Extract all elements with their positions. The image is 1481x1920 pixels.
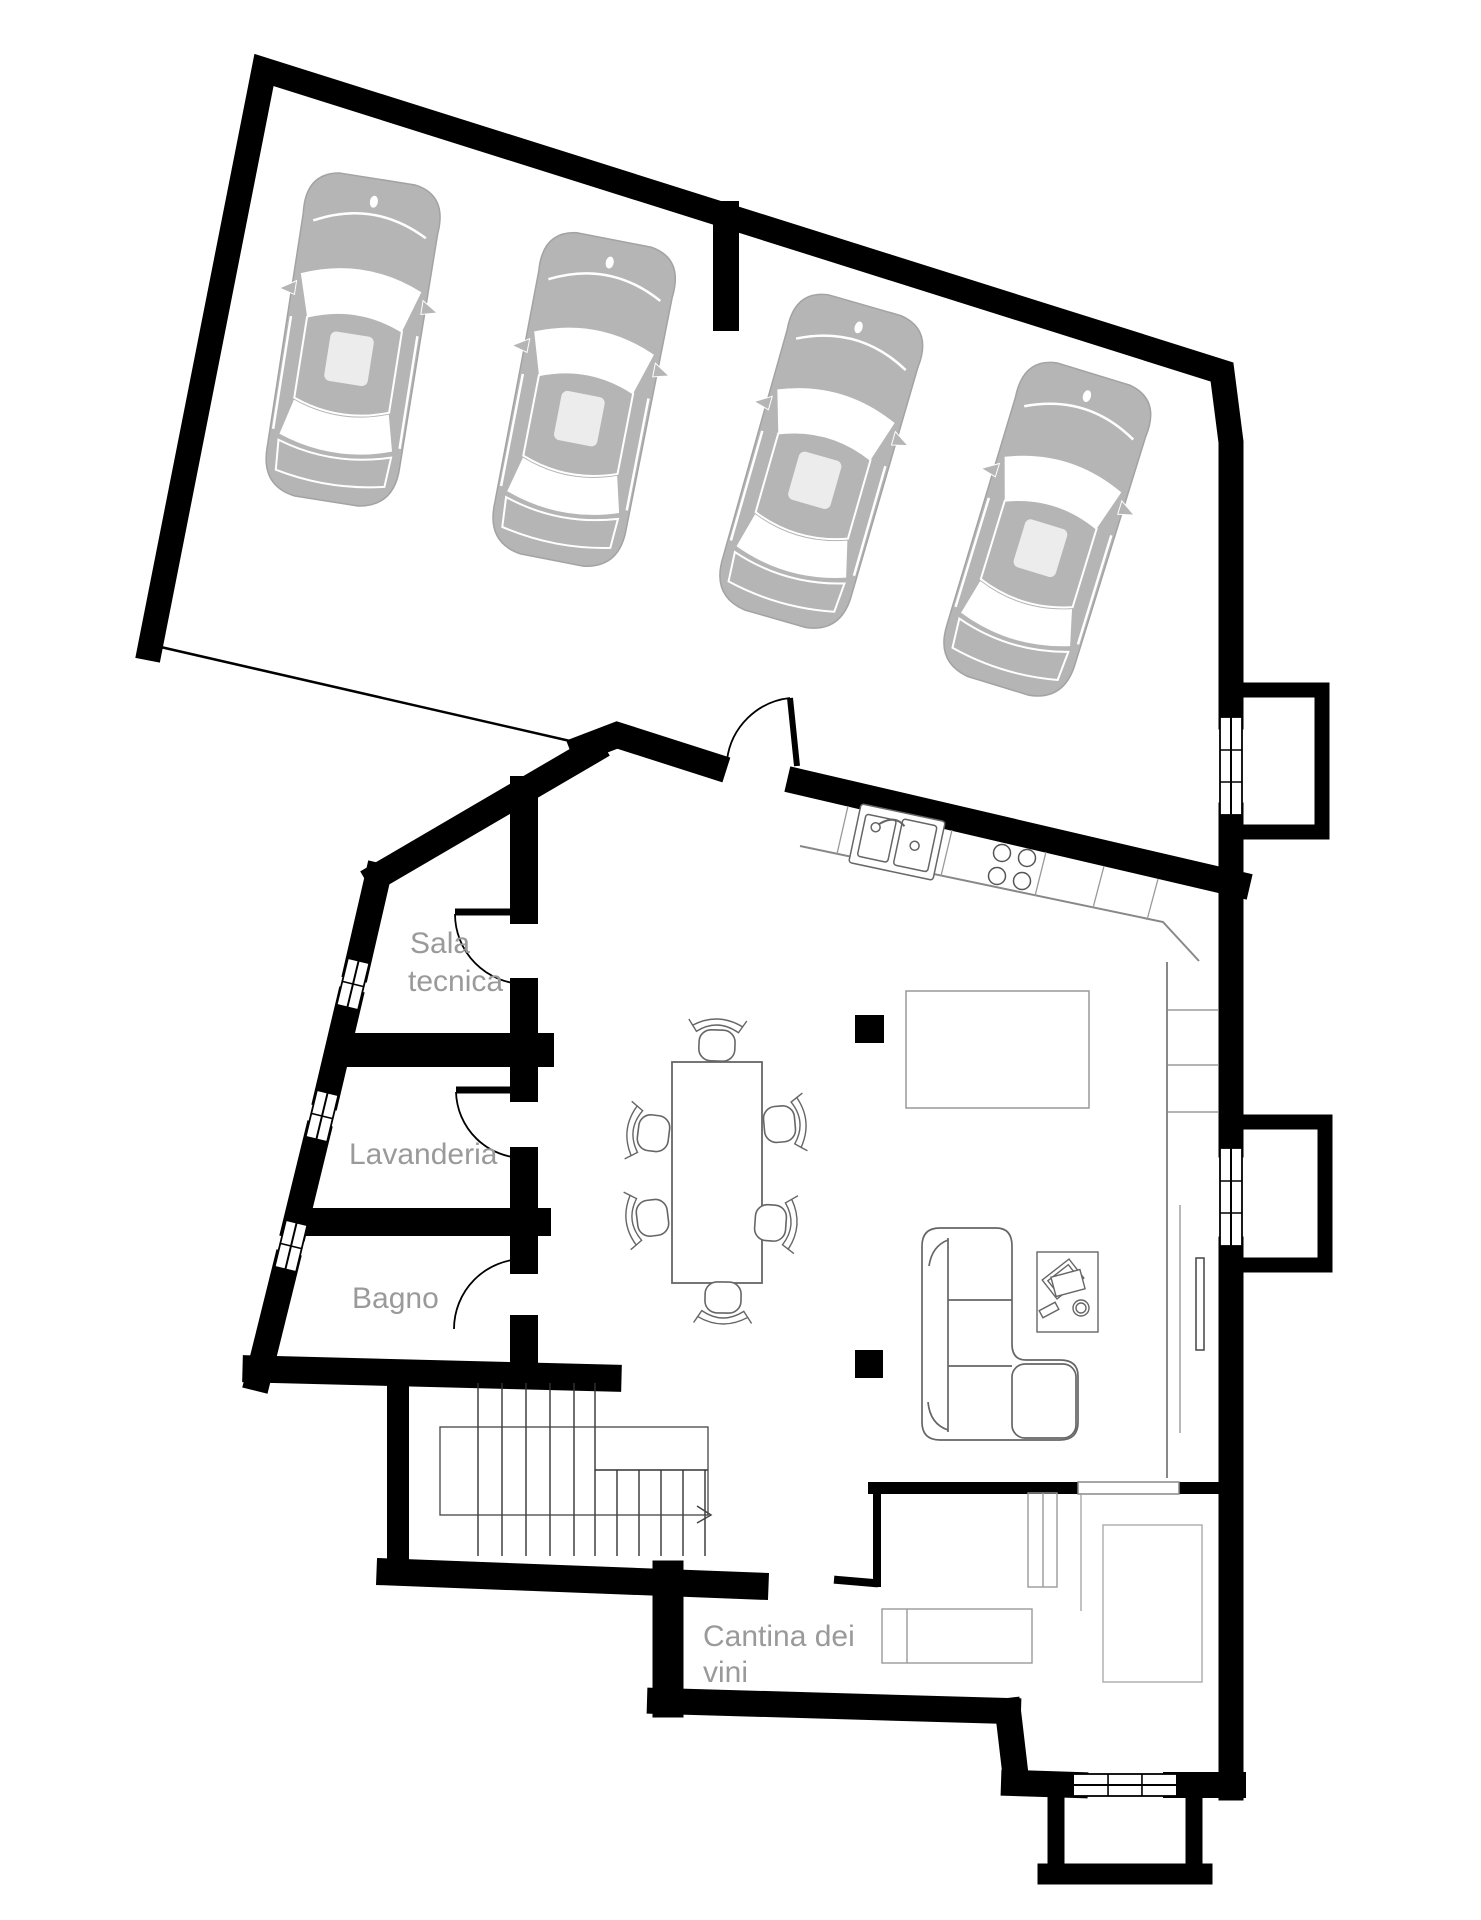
window-icon [1073, 1774, 1177, 1796]
car-icon [473, 225, 692, 576]
left-wall [357, 876, 378, 967]
chair-icon [762, 1093, 809, 1154]
media-cabinet [1167, 962, 1219, 1478]
window-icon [1220, 1148, 1242, 1246]
room-label-sala-tecnica: Sala [410, 927, 470, 960]
floor-plan-svg: Sala tecnica Lavanderia Bagno Cantina de… [0, 0, 1481, 1920]
cantina-table [1103, 1525, 1202, 1682]
structural-column [855, 1015, 884, 1043]
room-label-cantina: vini [703, 1656, 748, 1689]
room-label-cantina: Cantina dei [703, 1620, 855, 1653]
window-icon [1220, 717, 1242, 815]
room-label-bagno: Bagno [352, 1282, 439, 1315]
cantina-east-partition [838, 1580, 874, 1583]
cantina-shelving [882, 1493, 1081, 1663]
window-icon [306, 1090, 339, 1142]
wall-niche [1078, 1482, 1179, 1494]
lightwell-top [1243, 690, 1322, 832]
chair-icon [624, 1101, 673, 1164]
cantina-south-wall [1008, 1711, 1016, 1779]
structural-column [855, 1350, 883, 1378]
garage-cars [247, 166, 1170, 709]
window-icon [275, 1220, 308, 1272]
dining-table [672, 1062, 762, 1283]
cooktop-icon [989, 845, 1036, 890]
chair-icon [694, 1281, 753, 1324]
coffee-table [1037, 1252, 1098, 1332]
southwest-wall [256, 1369, 608, 1378]
cantina-south-wall [660, 1701, 1008, 1711]
chair-icon [623, 1187, 672, 1250]
stairs [440, 1383, 711, 1556]
entry-door-leaf [790, 698, 797, 766]
tv-icon [1196, 1258, 1204, 1350]
window-icon [337, 958, 370, 1010]
left-wall [378, 751, 592, 876]
cantina-south-wall [1014, 1783, 1075, 1785]
chair-icon [687, 1018, 746, 1062]
floor-plan-page: Sala tecnica Lavanderia Bagno Cantina de… [0, 0, 1481, 1920]
cantina-passage-wall [686, 1586, 755, 1590]
garage-floor-edge [152, 645, 583, 744]
car-icon [247, 166, 456, 513]
area-rug [906, 991, 1089, 1108]
car-icon [922, 351, 1170, 710]
room-label-lavanderia: Lavanderia [349, 1138, 498, 1171]
room-label-sala-tecnica: tecnica [408, 965, 503, 998]
lightwell-middle [1243, 1122, 1325, 1265]
entry-door-arc [727, 698, 790, 760]
car-icon [698, 283, 942, 640]
